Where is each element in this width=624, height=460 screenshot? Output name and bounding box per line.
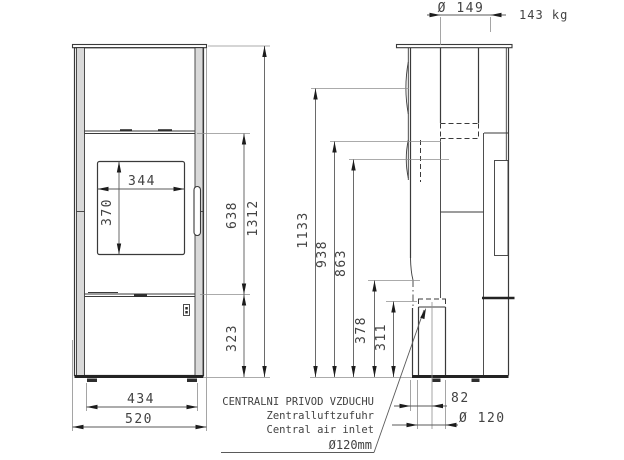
dim-311-label: 311 xyxy=(374,323,389,351)
arrowhead xyxy=(372,281,376,292)
arrowhead xyxy=(491,13,502,17)
arrowhead xyxy=(407,423,418,427)
air-inlet-note-diameter: Ø120mm xyxy=(329,438,372,452)
rear-shield-slot xyxy=(495,161,509,256)
arrowhead xyxy=(351,366,355,377)
arrowhead xyxy=(87,405,98,409)
arrowhead xyxy=(117,162,121,173)
arrowhead xyxy=(313,89,317,100)
arrowhead xyxy=(196,425,207,429)
dim-total-width-label: 520 xyxy=(125,412,153,427)
arrowhead xyxy=(242,284,246,295)
arrowhead xyxy=(351,160,355,171)
dim-total-height-label: 1312 xyxy=(246,199,261,236)
arrowhead xyxy=(117,244,121,255)
arrowhead xyxy=(98,187,109,191)
drawing-svg: 344 370 638 323 1312 434 520 xyxy=(0,0,624,460)
technical-drawing-stove: 344 370 638 323 1312 434 520 xyxy=(0,0,624,460)
air-inlet-note-de: Zentralluftzufuhr xyxy=(267,410,374,422)
dim-window-height-label: 370 xyxy=(100,198,115,226)
dimensions-front: 344 370 638 323 1312 434 520 xyxy=(73,46,271,431)
dim-air-inlet-setback-label: 82 xyxy=(451,391,470,406)
vent-slot xyxy=(158,129,172,131)
arrowhead xyxy=(400,404,411,408)
arrowhead xyxy=(242,295,246,306)
arrowhead xyxy=(73,425,84,429)
vent-slot xyxy=(134,294,147,297)
dim-rear-outlet-height-label: 1133 xyxy=(296,211,311,248)
arrowhead xyxy=(372,366,376,377)
dim-378-label: 378 xyxy=(354,316,369,344)
side-view xyxy=(397,45,515,383)
dimensions-side: Ø 149 1133 938 863 378 311 xyxy=(296,1,506,429)
dim-flue-diameter-label: Ø 149 xyxy=(438,1,485,16)
air-inlet-note-en: Central air inlet xyxy=(267,424,374,436)
arrowhead xyxy=(242,134,246,145)
door-handle xyxy=(194,187,201,236)
dim-upper-body-height-label: 638 xyxy=(225,201,240,229)
dim-base-width-label: 434 xyxy=(127,392,155,407)
top-plate-side xyxy=(397,45,513,48)
dim-863-label: 863 xyxy=(334,249,349,277)
foot xyxy=(433,379,441,383)
dim-window-width-label: 344 xyxy=(128,174,156,189)
arrowhead xyxy=(174,187,185,191)
arrowhead xyxy=(391,302,395,313)
dim-base-section-height-label: 323 xyxy=(225,324,240,352)
air-inlet-callout: CENTRALNI PRIVOD VZDUCHU Zentralluftzufu… xyxy=(221,308,426,453)
arrowhead xyxy=(432,404,443,408)
dim-938-label: 938 xyxy=(315,240,330,268)
arrowhead xyxy=(187,405,198,409)
foot xyxy=(187,379,197,383)
arrowhead xyxy=(420,308,426,319)
brand-logo xyxy=(184,305,190,316)
dim-air-inlet-diameter-label: Ø 120 xyxy=(459,411,506,426)
air-inlet-note-cs: CENTRALNI PRIVOD VZDUCHU xyxy=(222,396,374,408)
arrowhead xyxy=(332,142,336,153)
arrowhead xyxy=(391,366,395,377)
arrowhead xyxy=(446,423,457,427)
arrowhead xyxy=(262,366,266,377)
foot xyxy=(87,379,97,383)
arrowhead xyxy=(242,366,246,377)
arrowhead xyxy=(262,46,266,57)
front-view xyxy=(73,45,207,383)
vent-slot xyxy=(120,129,132,131)
arrowhead xyxy=(313,366,317,377)
weight-label: 143 kg xyxy=(519,8,568,22)
foot xyxy=(472,379,480,383)
arrowhead xyxy=(332,366,336,377)
